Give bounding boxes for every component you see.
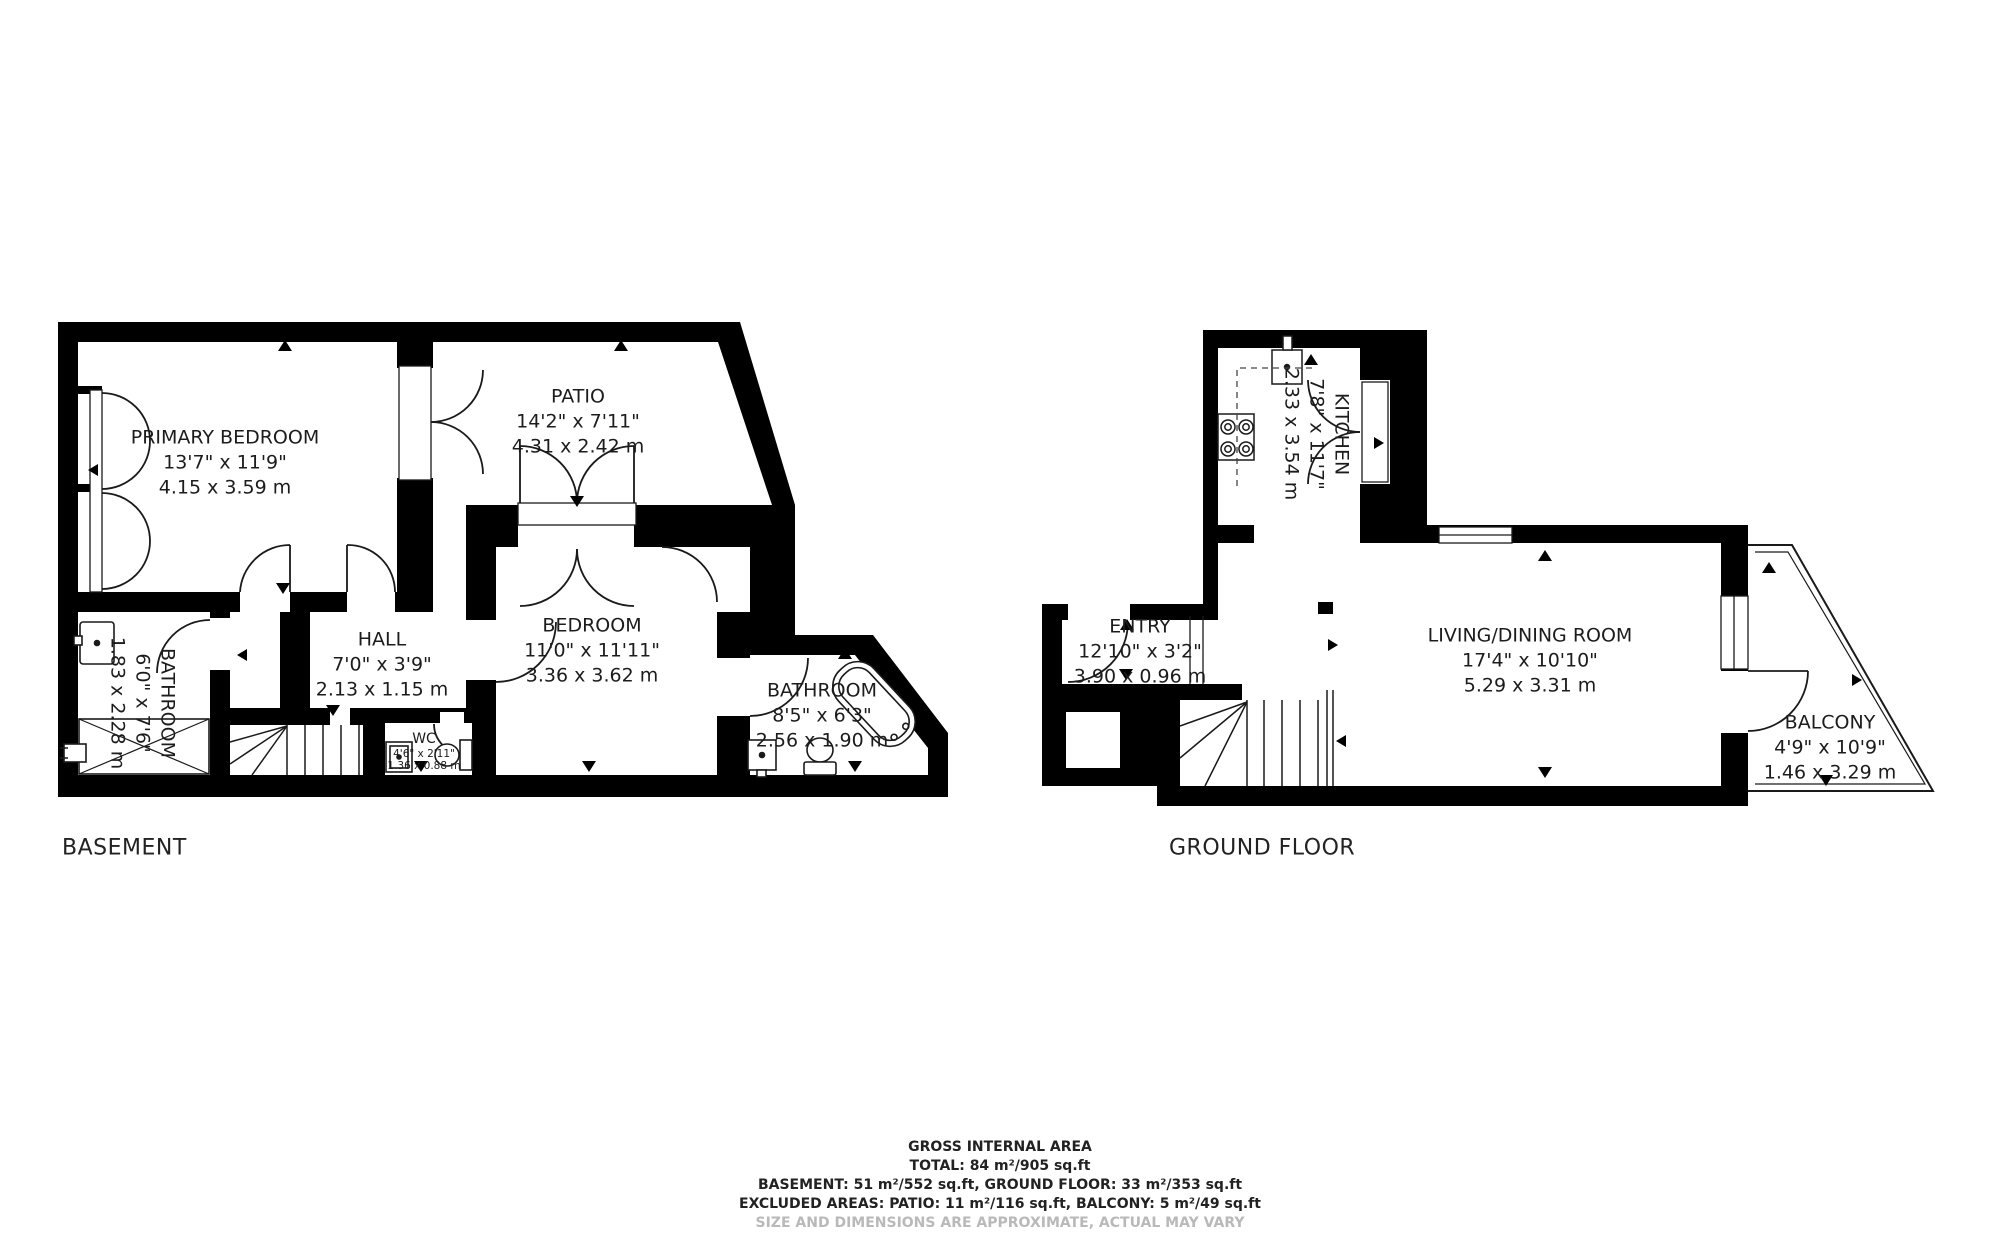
room-label-bathroom-right: BATHROOM 8'5" x 6'3" 2.56 x 1.90 m [756, 678, 888, 753]
room-label-wc: WC 4'6" x 2'11" 1.36 x 0.88 m [387, 731, 460, 773]
closet-door-frame [90, 390, 102, 592]
room-label-bathroom-left: BATHROOM 6'0" x 7'6" 1.83 x 2.28 m [104, 637, 179, 769]
stove-icon [1218, 414, 1254, 460]
summary-floors: BASEMENT: 51 m²/552 sq.ft, GROUND FLOOR:… [0, 1176, 2000, 1195]
lightwell [1066, 712, 1120, 768]
sink-icon [60, 744, 86, 762]
landing-floor [230, 612, 280, 708]
area-summary: GROSS INTERNAL AREA TOTAL: 84 m²/905 sq.… [0, 1138, 2000, 1233]
basement-floor-title: BASEMENT [62, 836, 187, 861]
room-label-balcony: BALCONY 4'9" x 10'9" 1.46 x 3.29 m [1764, 710, 1896, 785]
room-label-entry: ENTRY 12'10" x 3'2" 3.90 x 0.96 m [1074, 614, 1206, 689]
room-label-bedroom: BEDROOM 11'0" x 11'11" 3.36 x 3.62 m [524, 613, 660, 688]
column [1318, 602, 1333, 614]
room-label-primary-bedroom: PRIMARY BEDROOM 13'7" x 11'9" 4.15 x 3.5… [131, 425, 319, 500]
summary-title: GROSS INTERNAL AREA [0, 1138, 2000, 1157]
kitchen-door-frame-white [1360, 380, 1390, 484]
summary-excluded: EXCLUDED AREAS: PATIO: 11 m²/116 sq.ft, … [0, 1195, 2000, 1214]
room-label-kitchen: KITCHEN 7'8" x 11'7" 2.33 x 3.54 m [1278, 368, 1353, 500]
balcony-door-opening [1721, 671, 1748, 733]
ground-floor-title: GROUND FLOOR [1169, 836, 1355, 861]
room-label-hall: HALL 7'0" x 3'9" 2.13 x 1.15 m [316, 627, 448, 702]
summary-disclaimer: SIZE AND DIMENSIONS ARE APPROXIMATE, ACT… [0, 1214, 2000, 1233]
room-label-patio: PATIO 14'2" x 7'11" 4.31 x 2.42 m [512, 384, 644, 459]
floor-plan-page: PRIMARY BEDROOM 13'7" x 11'9" 4.15 x 3.5… [0, 0, 2000, 1249]
floor-plan-drawing [0, 0, 2000, 1249]
corridor-floor [433, 505, 466, 612]
room-label-living-dining: LIVING/DINING ROOM 17'4" x 10'10" 5.29 x… [1428, 623, 1633, 698]
bedroom-patio-door-frame [399, 366, 431, 480]
summary-total: TOTAL: 84 m²/905 sq.ft [0, 1157, 2000, 1176]
ground-stairs-floor [1180, 700, 1333, 786]
